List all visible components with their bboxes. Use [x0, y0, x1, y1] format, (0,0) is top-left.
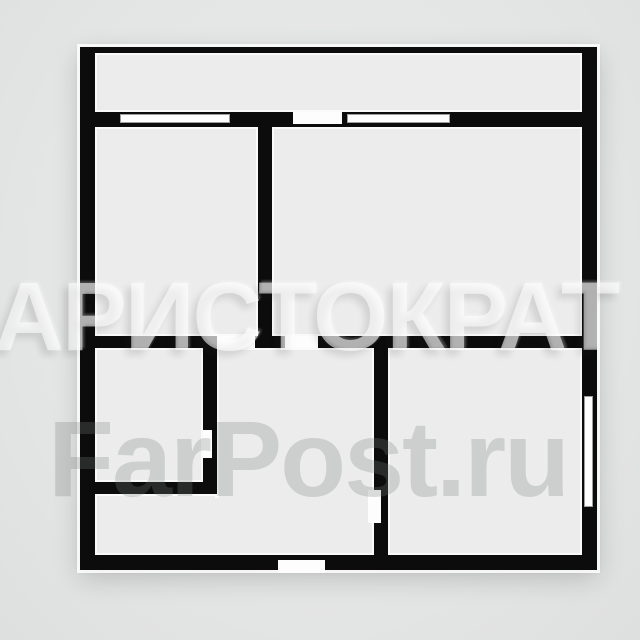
door-small-left-room	[203, 430, 212, 458]
room-top-left	[95, 127, 258, 336]
room-small-left	[95, 348, 203, 482]
right-wall-window	[584, 396, 593, 507]
door-bottom-right-room	[368, 490, 381, 523]
room-bottom-right	[388, 348, 582, 555]
hallway-lower-left	[95, 494, 217, 555]
balcony-window-left	[120, 114, 230, 123]
hallway-junction-patch	[211, 498, 223, 553]
door-top-left-room	[217, 336, 255, 348]
entry-door-opening	[278, 560, 325, 573]
floor-plan-image: АРИСТОКРАТ FarPost.ru	[0, 0, 640, 640]
balcony-door-opening	[293, 112, 342, 124]
hallway-main	[217, 348, 374, 555]
balcony-window-right	[347, 114, 450, 123]
door-top-right-room	[285, 336, 318, 348]
balcony-strip	[95, 53, 582, 112]
room-top-right	[272, 127, 582, 336]
